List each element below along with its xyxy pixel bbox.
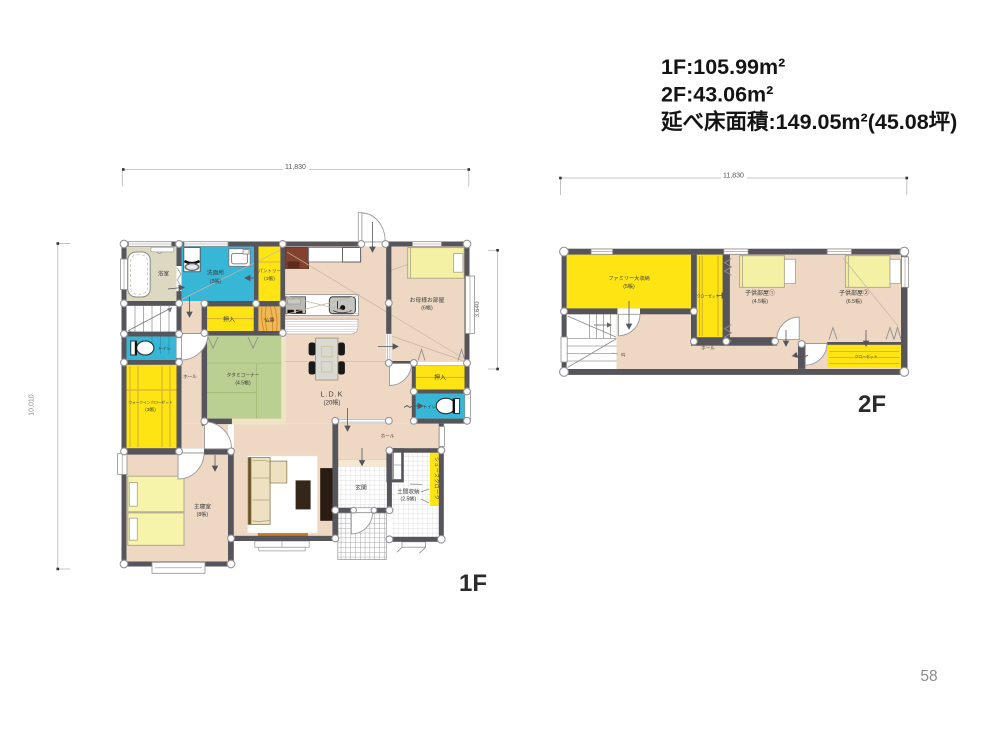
svg-text:10,010: 10,010 — [29, 394, 36, 416]
svg-text:ファミリー大収納: ファミリー大収納 — [608, 274, 650, 282]
svg-text:(4.5帳): (4.5帳) — [235, 380, 251, 387]
svg-text:(5帳): (5帳) — [623, 282, 635, 290]
svg-text:土間収納: 土間収納 — [397, 488, 420, 496]
svg-text:子供部屋①: 子供部屋① — [745, 289, 775, 297]
svg-text:2F:43.06m²: 2F:43.06m² — [661, 83, 773, 107]
svg-text:3,640: 3,640 — [474, 301, 481, 318]
svg-text:1F:105.99m²: 1F:105.99m² — [661, 55, 785, 79]
svg-text:(3帳): (3帳) — [210, 277, 222, 285]
svg-text:11,830: 11,830 — [285, 164, 306, 171]
svg-text:(20帳): (20帳) — [324, 399, 341, 407]
svg-text:トイレ: トイレ — [158, 346, 171, 351]
svg-text:L.D.K: L.D.K — [321, 390, 344, 399]
svg-text:仏壇: 仏壇 — [264, 317, 274, 324]
svg-text:パントリー: パントリー — [258, 269, 281, 274]
svg-text:(8帳): (8帳) — [197, 510, 209, 518]
svg-text:子供部屋②: 子供部屋② — [839, 289, 869, 297]
svg-text:11,830: 11,830 — [723, 173, 744, 180]
svg-text:58: 58 — [920, 668, 937, 685]
svg-text:(3帳): (3帳) — [145, 406, 156, 413]
svg-text:シューズクローク: シューズクローク — [433, 457, 440, 500]
svg-text:クローゼット: クローゼット — [855, 354, 878, 359]
svg-text:(1帳): (1帳) — [264, 275, 275, 282]
svg-text:玄関: 玄関 — [355, 484, 367, 492]
svg-text:トイレ: トイレ — [423, 405, 436, 410]
svg-text:(2.5帳): (2.5帳) — [400, 495, 416, 503]
svg-text:押入: 押入 — [434, 374, 446, 382]
svg-text:2F: 2F — [858, 391, 886, 418]
svg-text:1F: 1F — [459, 570, 487, 597]
svg-text:押入: 押入 — [223, 316, 235, 324]
svg-text:(6.5帳): (6.5帳) — [846, 297, 862, 305]
svg-text:吟: 吟 — [621, 352, 626, 359]
svg-text:(6帳): (6帳) — [421, 304, 433, 312]
svg-text:タタミコーナー: タタミコーナー — [227, 372, 260, 379]
svg-text:延べ床面積:149.05m²(45.08坪): 延べ床面積:149.05m²(45.08坪) — [660, 109, 957, 134]
svg-text:ホール: ホール — [381, 434, 395, 439]
svg-text:お母様お部屋: お母様お部屋 — [410, 296, 445, 304]
svg-text:(4.5帳): (4.5帳) — [752, 297, 768, 305]
svg-text:主寝室: 主寝室 — [194, 503, 212, 511]
svg-text:ホール: ホール — [701, 346, 715, 351]
svg-text:浴室: 浴室 — [158, 270, 170, 278]
svg-text:ウォークインクローゼット: ウォークインクローゼット — [128, 400, 173, 405]
svg-text:クローゼット: クローゼット — [697, 294, 720, 299]
svg-text:ホール: ホール — [183, 374, 197, 379]
svg-text:洗面所: 洗面所 — [207, 269, 225, 277]
